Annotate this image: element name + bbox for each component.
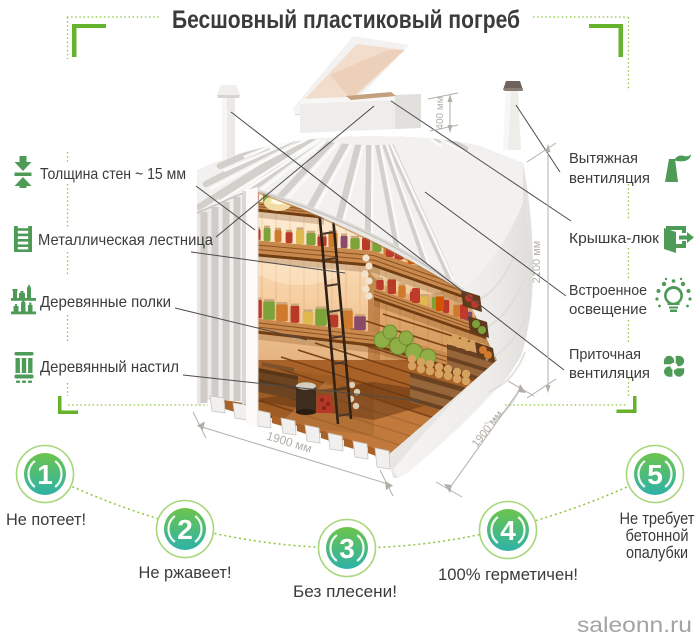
- svg-text:4: 4: [500, 515, 516, 546]
- svg-text:2100 мм: 2100 мм: [531, 241, 543, 284]
- svg-text:2: 2: [177, 514, 193, 545]
- svg-text:1: 1: [37, 459, 53, 490]
- svg-text:Не ржавеет!: Не ржавеет!: [139, 563, 232, 582]
- svg-text:Без плесени!: Без плесени!: [293, 582, 397, 601]
- svg-text:вентиляция: вентиляция: [569, 365, 650, 382]
- svg-text:опалубки: опалубки: [626, 543, 688, 562]
- svg-text:Крышка-люк: Крышка-люк: [569, 230, 659, 247]
- svg-text:5: 5: [647, 459, 663, 490]
- svg-text:3: 3: [339, 533, 355, 564]
- svg-text:вентиляция: вентиляция: [569, 170, 650, 187]
- svg-text:Вытяжная: Вытяжная: [569, 150, 638, 167]
- svg-text:Приточная: Приточная: [569, 346, 641, 363]
- svg-text:освещение: освещение: [569, 301, 647, 318]
- svg-text:400 мм: 400 мм: [435, 96, 446, 129]
- svg-text:Не потеет!: Не потеет!: [6, 510, 86, 529]
- svg-text:saleonn.ru: saleonn.ru: [577, 614, 692, 637]
- svg-text:Толщина стен ~ 15 мм: Толщина стен ~ 15 мм: [40, 166, 186, 183]
- svg-text:Встроенное: Встроенное: [569, 282, 647, 299]
- svg-text:Металлическая лестница: Металлическая лестница: [38, 232, 213, 249]
- svg-text:Деревянный настил: Деревянный настил: [40, 359, 179, 376]
- svg-text:Бесшовный пластиковый погреб: Бесшовный пластиковый погреб: [172, 6, 520, 34]
- svg-text:Деревянные полки: Деревянные полки: [40, 294, 171, 311]
- svg-text:100% герметичен!: 100% герметичен!: [438, 565, 578, 584]
